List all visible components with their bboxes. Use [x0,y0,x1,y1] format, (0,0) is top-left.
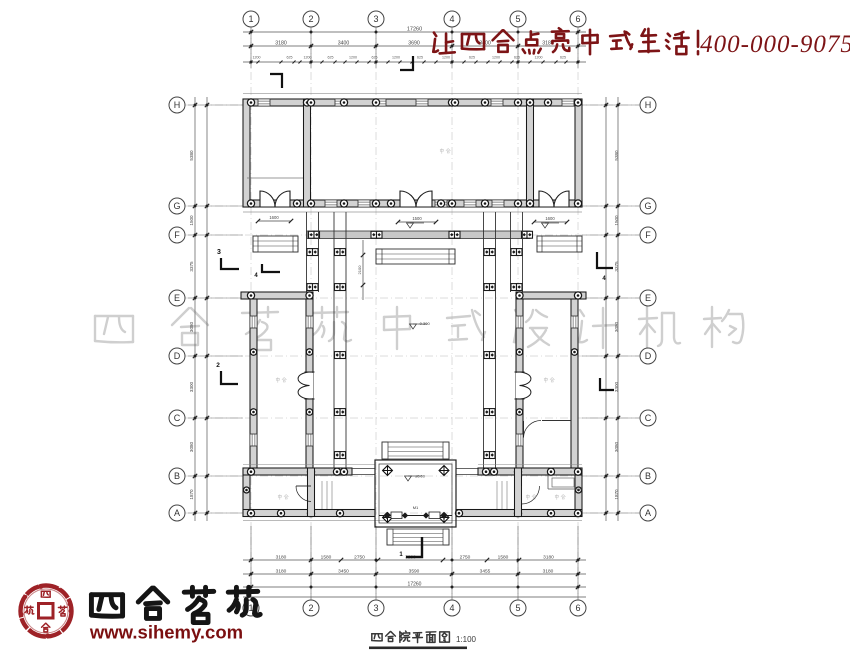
svg-text:A: A [174,508,180,518]
svg-text:3690: 3690 [408,41,420,47]
svg-text:625: 625 [287,56,293,60]
svg-text:625: 625 [560,56,566,60]
svg-text:www.sihemy.com: www.sihemy.com [89,622,243,643]
svg-text:3: 3 [373,14,378,24]
svg-text:3180: 3180 [275,41,287,47]
svg-text:6: 6 [575,603,580,613]
svg-text:2: 2 [216,362,220,369]
svg-text:1600: 1600 [269,215,279,220]
svg-text:1200: 1200 [442,56,450,60]
svg-text:1870: 1870 [189,489,194,500]
svg-text:2100: 2100 [357,265,362,275]
svg-text:625: 625 [372,56,378,60]
svg-text:H: H [645,100,652,110]
svg-text:G: G [173,201,180,211]
svg-text:3590: 3590 [409,569,420,575]
svg-text:1580: 1580 [498,555,509,561]
svg-text:4: 4 [449,603,454,613]
svg-text:3: 3 [373,603,378,613]
svg-text:3450: 3450 [338,569,349,575]
svg-text:E: E [645,293,651,303]
svg-text:1200: 1200 [392,56,400,60]
svg-text:A: A [645,508,651,518]
svg-text:1500: 1500 [412,216,422,221]
svg-text:1600: 1600 [545,216,555,221]
svg-text:1200: 1200 [253,56,261,60]
svg-text:1200: 1200 [349,56,357,60]
svg-text:D: D [645,351,652,361]
svg-text:B: B [645,471,651,481]
svg-text:3300: 3300 [189,381,194,392]
svg-text:3080: 3080 [189,441,194,452]
svg-text:±0.00: ±0.00 [415,474,426,479]
svg-text:1580: 1580 [321,555,332,561]
svg-text:E: E [174,293,180,303]
svg-text:625: 625 [469,56,475,60]
svg-text:400-000-9075: 400-000-9075 [700,31,850,58]
svg-text:3400: 3400 [338,41,350,47]
svg-text:1: 1 [248,14,253,24]
svg-text:1500: 1500 [189,215,194,226]
svg-text:B: B [174,471,180,481]
svg-text:1200: 1200 [535,56,543,60]
svg-text:C: C [645,413,652,423]
svg-text:G: G [644,201,651,211]
svg-text:5380: 5380 [189,150,194,161]
svg-text:3180: 3180 [276,555,287,561]
svg-text:3180: 3180 [543,555,554,561]
svg-text:3080: 3080 [189,321,194,332]
svg-text:4: 4 [449,14,454,24]
svg-text:6: 6 [575,14,580,24]
svg-text:1:100: 1:100 [456,635,477,644]
svg-text:D: D [174,351,181,361]
svg-text:3375: 3375 [189,261,194,272]
svg-text:5: 5 [515,603,520,613]
svg-text:625: 625 [328,56,334,60]
svg-text:3: 3 [217,249,221,256]
svg-text:3455: 3455 [480,569,491,575]
svg-text:F: F [645,230,651,240]
svg-text:2: 2 [308,603,313,613]
svg-text:F: F [174,230,180,240]
svg-text:-0.300: -0.300 [418,321,430,326]
svg-text:625: 625 [514,56,520,60]
svg-text:H: H [174,100,181,110]
svg-text:2: 2 [308,14,313,24]
svg-text:5: 5 [515,14,520,24]
svg-text:2750: 2750 [354,555,365,561]
svg-text:17260: 17260 [408,582,422,588]
svg-text:17260: 17260 [407,27,422,33]
svg-text:2750: 2750 [460,555,471,561]
svg-text:M1: M1 [413,505,419,510]
svg-text:1200: 1200 [492,56,500,60]
svg-text:3180: 3180 [276,569,287,575]
svg-text:3180: 3180 [543,569,554,575]
svg-text:1200: 1200 [304,56,312,60]
svg-text:C: C [174,413,181,423]
svg-text:625: 625 [417,56,423,60]
